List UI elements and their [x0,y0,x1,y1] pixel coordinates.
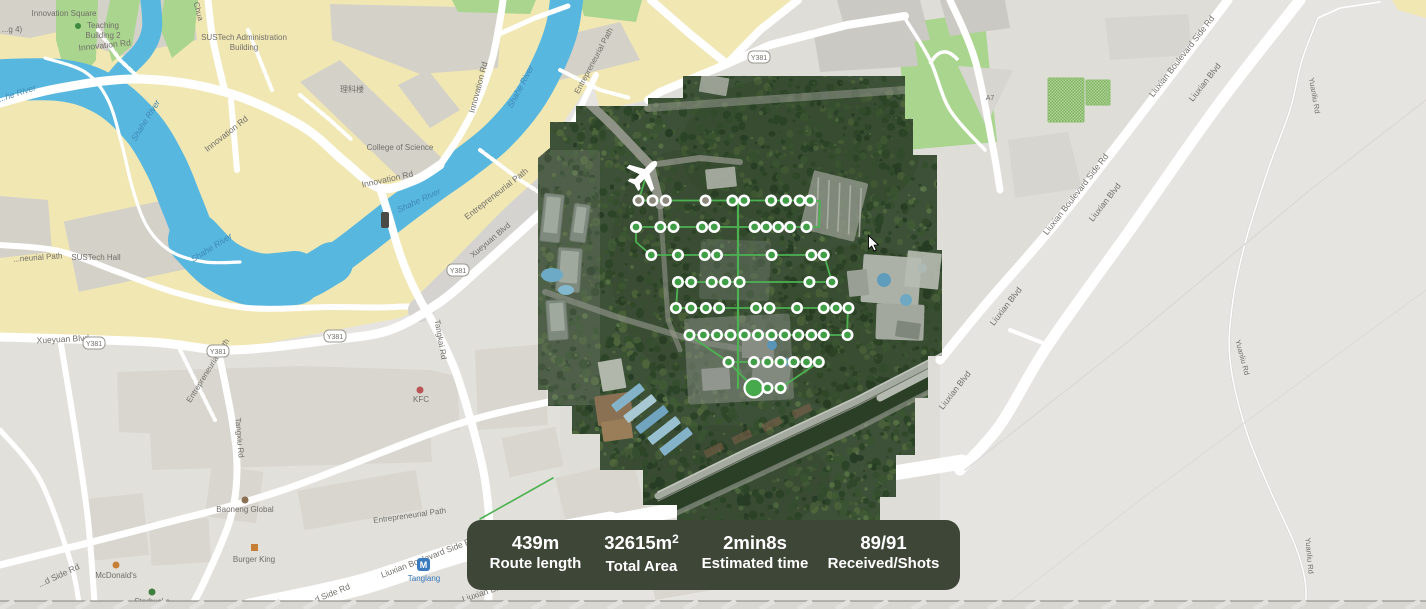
svg-text:Innovation Square: Innovation Square [32,9,97,18]
svg-text:SUSTech Administration: SUSTech Administration [201,33,287,42]
svg-text:Y381: Y381 [86,341,102,348]
svg-text:A7: A7 [986,95,995,102]
svg-text:SUSTech Hall: SUSTech Hall [71,253,121,262]
svg-text:Burger King: Burger King [233,555,275,564]
svg-text:Teaching: Teaching [87,21,119,30]
svg-text:Y381: Y381 [751,55,767,62]
svg-text:McDonald's: McDonald's [95,571,137,580]
svg-text:KFC: KFC [413,395,429,404]
svg-text:理科楼: 理科楼 [340,84,364,94]
svg-text:...g 4): ...g 4) [2,25,23,34]
svg-text:Tanglang: Tanglang [408,574,440,583]
svg-text:Baoneng Global: Baoneng Global [216,505,274,514]
svg-text:Building: Building [230,43,258,52]
svg-text:Y381: Y381 [210,349,226,356]
svg-text:Y381: Y381 [327,334,343,341]
svg-text:Y381: Y381 [450,268,466,275]
svg-text:College of Science: College of Science [367,143,434,152]
